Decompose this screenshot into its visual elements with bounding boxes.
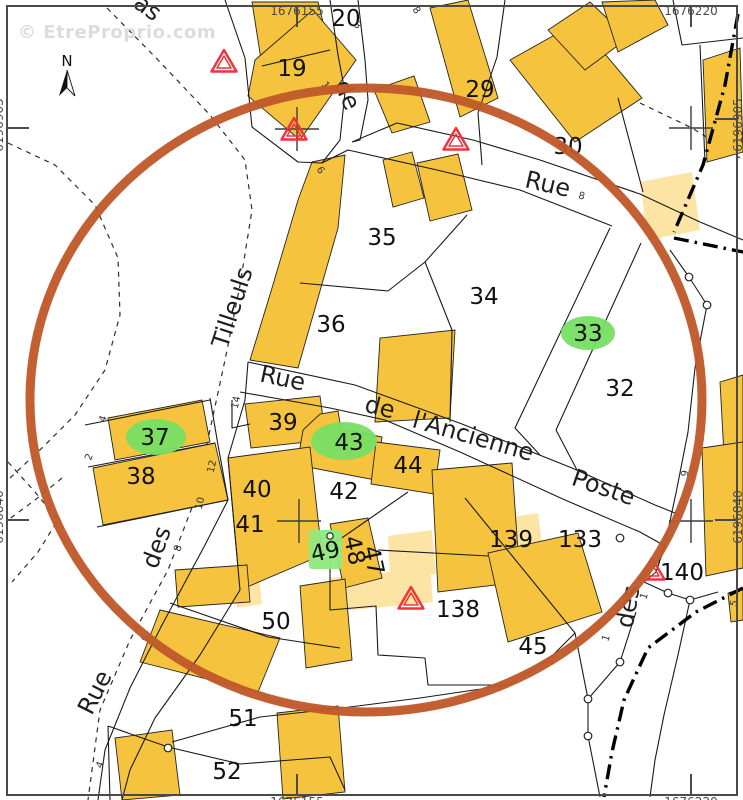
parcel-label-138: 138 xyxy=(436,597,480,623)
parcel-label-45: 45 xyxy=(518,634,547,660)
survey-point-icon xyxy=(685,273,693,281)
grid-label-bottom-left: 1676155 xyxy=(270,795,323,800)
parcel-label-40: 40 xyxy=(242,477,271,503)
parcel-label-44: 44 xyxy=(393,453,422,479)
building xyxy=(300,579,352,668)
survey-point-icon xyxy=(616,534,624,542)
grid-label-right-bottom: 6196840 xyxy=(731,490,743,543)
parcel-label-34: 34 xyxy=(469,284,498,310)
parcel-label-38: 38 xyxy=(126,464,155,490)
parcel-label-51: 51 xyxy=(228,706,257,732)
grid-label-bottom-right: 1676220 xyxy=(664,795,717,800)
grid-label-right-top: 6196905 xyxy=(731,98,743,151)
grid-label-top-right: 1676220 xyxy=(664,4,717,18)
parcel-label-43: 43 xyxy=(334,430,363,456)
survey-point-icon xyxy=(686,596,694,604)
grid-label-top-left: 1676155 xyxy=(270,4,323,18)
parcel-label-35: 35 xyxy=(367,225,396,251)
parcel-label-50: 50 xyxy=(261,609,290,635)
parcel-label-133: 133 xyxy=(558,527,602,553)
parcel-label-33: 33 xyxy=(573,321,602,347)
parcel-label-37: 37 xyxy=(140,425,169,451)
north-label: N xyxy=(61,52,72,70)
survey-point-icon xyxy=(584,695,592,703)
grid-label-left-bottom: 6196840 xyxy=(0,490,6,543)
parcel-label-52: 52 xyxy=(212,759,241,785)
survey-point-icon xyxy=(703,301,711,309)
parcel-label-39: 39 xyxy=(268,410,297,436)
survey-point-icon xyxy=(664,589,672,597)
parcel-label-42: 42 xyxy=(329,479,358,505)
survey-point-icon xyxy=(164,744,172,752)
parcel-label-32: 32 xyxy=(605,376,634,402)
survey-point-icon xyxy=(327,533,333,539)
parcel-label-41: 41 xyxy=(235,512,264,538)
grid-label-left-top: 6196905 xyxy=(0,98,6,151)
survey-point-icon xyxy=(616,658,624,666)
parcel-label-140: 140 xyxy=(660,560,704,586)
cadastral-map: asdeRueRuedel'AnciennePosteTilleulsdesRu… xyxy=(0,0,743,800)
parcel-label-36: 36 xyxy=(316,312,345,338)
watermark: © EtreProprio.com xyxy=(18,22,216,43)
parcel-label-139: 139 xyxy=(489,527,533,553)
parcel-label-19: 19 xyxy=(277,56,306,82)
building xyxy=(277,706,345,799)
survey-point-icon xyxy=(584,732,592,740)
